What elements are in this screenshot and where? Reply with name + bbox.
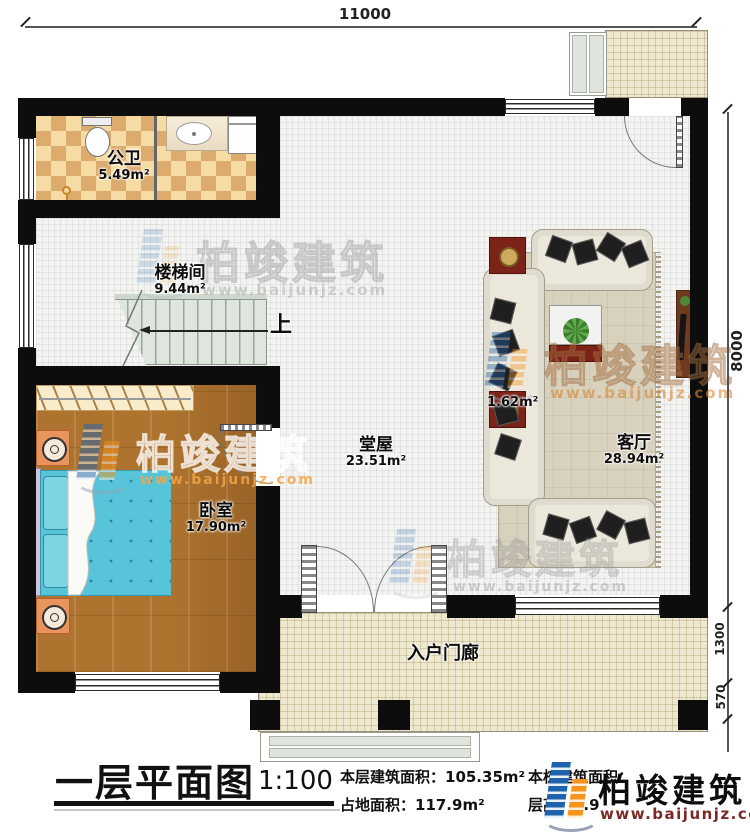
room-label-bathroom: 公卫 5.49m²: [82, 150, 166, 183]
room-area: 9.44m²: [138, 283, 222, 297]
dimension-line-right: [727, 112, 729, 752]
room-label-hall: 堂屋 23.51m²: [332, 436, 420, 469]
wall: [595, 98, 629, 116]
wall: [447, 595, 515, 618]
dimension-right-upper-value: 8000: [728, 330, 746, 372]
dimension-right-lower-value: 570: [714, 677, 728, 717]
step-tread: [269, 736, 471, 746]
stair-direction-line: [150, 330, 268, 332]
bed-blanket-fold: [66, 470, 112, 596]
cabinet-plant: [680, 296, 690, 306]
wall: [18, 348, 36, 692]
wall: [18, 200, 280, 218]
entry-door-right-leaf: [431, 545, 447, 613]
window: [19, 138, 34, 200]
side-table: [489, 237, 526, 274]
bedroom-door-leaf: [220, 424, 272, 431]
porch-column: [678, 700, 708, 730]
wall: [220, 672, 280, 693]
wall: [18, 98, 36, 138]
nightstand: [36, 430, 70, 466]
room-name: 堂屋: [332, 436, 420, 455]
wall: [256, 366, 280, 428]
room-label-porch: 入户门廊: [395, 644, 491, 664]
room-area: 17.90m²: [172, 521, 260, 535]
nightstand: [36, 598, 70, 634]
room-name: 卧室: [172, 502, 260, 521]
dimension-top-value: 11000: [330, 5, 400, 23]
potted-plant: [563, 318, 589, 344]
step-tread: [589, 35, 604, 93]
brand-url: www.baijunjz.com: [600, 805, 750, 823]
wall: [660, 595, 708, 618]
room-area: 28.94m²: [590, 453, 678, 467]
table-lamp: [42, 437, 67, 462]
floor-plan-canvas: 上: [0, 0, 750, 839]
dimension-right-mid-value: 1300: [713, 617, 727, 661]
wall: [256, 98, 280, 218]
wall: [681, 98, 708, 116]
porch-column: [378, 700, 410, 730]
room-label-stairwell: 楼梯间 9.44m²: [138, 264, 222, 297]
side-porch-floor: [605, 30, 708, 98]
room-label-living: 客厅 28.94m²: [590, 434, 678, 467]
window: [19, 244, 34, 348]
wardrobe: [36, 385, 194, 411]
entry-porch-floor: [258, 612, 708, 732]
dimension-line-top: [25, 26, 697, 28]
step-tread: [269, 748, 471, 758]
wardrobe-rod: [39, 398, 191, 400]
window: [505, 99, 595, 114]
window: [75, 674, 220, 691]
title-underline-thick: [54, 801, 334, 806]
table-ornament: [499, 247, 519, 267]
porch-column: [250, 700, 280, 730]
wall: [280, 595, 302, 618]
window: [515, 597, 660, 615]
toilet-tank: [82, 117, 112, 126]
brand-logo: 柏竣建筑 www.baijunjz.com: [548, 758, 748, 836]
plan-scale: 1:100: [258, 766, 333, 796]
land-area-text: 占地面积：117.9m²: [340, 794, 485, 815]
room-name: 公卫: [82, 150, 166, 169]
sink-drain: [192, 132, 196, 136]
room-label-bedroom: 卧室 17.90m²: [172, 502, 260, 535]
stair-up-label: 上: [268, 314, 294, 338]
side-door-leaf: [676, 116, 683, 168]
table-lamp: [42, 605, 67, 630]
room-name: 楼梯间: [138, 264, 222, 283]
entry-steps: [260, 732, 480, 762]
side-porch-steps: [569, 32, 607, 96]
room-name: 客厅: [590, 434, 678, 453]
entry-door-left-leaf: [301, 545, 317, 613]
rug-fringe: [656, 252, 661, 568]
wall: [18, 366, 280, 385]
room-area: 23.51m²: [332, 455, 420, 469]
room-area: 5.49m²: [82, 169, 166, 183]
wall: [18, 672, 75, 693]
plan-title: 一层平面图: [55, 752, 255, 807]
wall: [690, 116, 708, 612]
lamp-center: [50, 445, 59, 454]
floor-drain: [62, 186, 71, 195]
title-underline-thin: [54, 809, 340, 811]
stair-arrowhead: [139, 326, 150, 334]
floor-area-text: 本层建筑面积：105.35m²: [340, 766, 525, 787]
coffee-table-shelf: [549, 345, 602, 362]
step-tread: [572, 35, 587, 93]
small-area-label: 1.62m²: [487, 396, 537, 410]
lamp-center: [50, 613, 59, 622]
